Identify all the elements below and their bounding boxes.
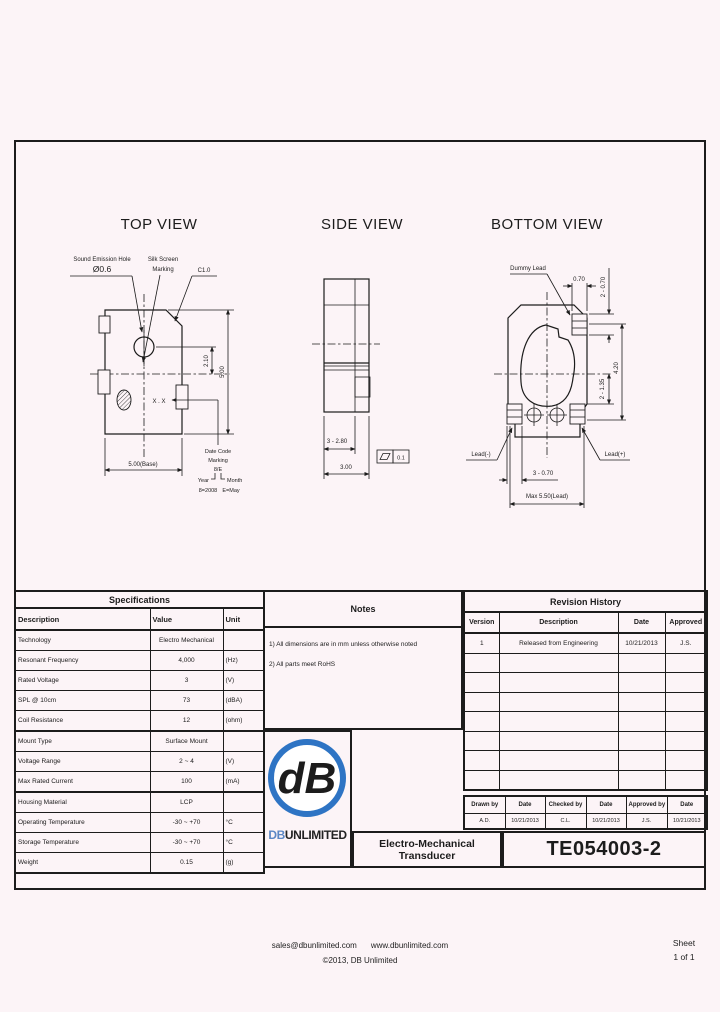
- drawn-by-label: Drawn by: [464, 796, 505, 814]
- specifications-table: Specifications Description Value Unit Te…: [14, 590, 265, 874]
- rev-date: 10/21/2013: [618, 633, 665, 653]
- page-footer: sales@dbunlimited.comwww.dbunlimited.com…: [0, 938, 720, 968]
- sheet-label: Sheet: [658, 936, 710, 950]
- drawn-date-value: 10/21/2013: [505, 814, 545, 830]
- spec-unit: (dBA): [223, 691, 264, 711]
- sound-hole-label: Sound Emission Hole: [73, 257, 131, 263]
- revision-row: 1 Released from Engineering 10/21/2013 J…: [464, 633, 707, 653]
- bottom-view: BOTTOM VIEW: [466, 216, 630, 508]
- product-title: Electro-Mechanical Transducer: [352, 831, 502, 868]
- dim-height: 5.00: [220, 366, 226, 378]
- flatness-icon: [380, 454, 390, 460]
- spec-unit: °C: [223, 813, 264, 833]
- spec-unit: (Hz): [223, 651, 264, 671]
- spec-row: Max Rated Current100(mA): [15, 772, 264, 793]
- spec-row: Storage Temperature-30 ~ +70°C: [15, 833, 264, 853]
- dim-span: 4.20: [614, 362, 620, 374]
- sheet-info: Sheet 1 of 1: [658, 936, 710, 964]
- top-pad: [98, 370, 110, 394]
- rev-col-description: Description: [499, 612, 618, 633]
- logo-db-text: DB: [268, 828, 285, 842]
- datecode-month-example: E=May: [222, 488, 240, 494]
- revision-row-empty: [464, 770, 707, 790]
- spec-unit: (g): [223, 853, 264, 874]
- silkscreen-label-2: Marking: [152, 267, 173, 273]
- spec-row: Weight0.15(g): [15, 853, 264, 874]
- spec-value: -30 ~ +70: [150, 813, 223, 833]
- spec-desc: Housing Material: [15, 792, 150, 813]
- datecode-year-example: 8=2008: [199, 488, 218, 494]
- spec-row: Operating Temperature-30 ~ +70°C: [15, 813, 264, 833]
- approved-by-value: J.S.: [626, 814, 667, 830]
- bottom-view-title: BOTTOM VIEW: [491, 216, 603, 233]
- spec-value: 12: [150, 711, 223, 732]
- logo-cell: dB DBUNLIMITED: [263, 730, 352, 868]
- logo-wordmark: DBUNLIMITED: [265, 828, 350, 842]
- side-view: SIDE VIEW 3 - 2.80 3.00: [312, 216, 409, 479]
- spec-desc: Storage Temperature: [15, 833, 150, 853]
- spec-desc: Rated Voltage: [15, 671, 150, 691]
- spec-col-value: Value: [150, 608, 223, 630]
- rev-col-approved: Approved: [665, 612, 707, 633]
- dummy-lead-leader: [547, 274, 570, 315]
- spec-row: Coil Resistance12(ohm): [15, 711, 264, 732]
- spec-desc: SPL @ 10cm: [15, 691, 150, 711]
- spec-row: Resonant Frequency4,000(Hz): [15, 651, 264, 671]
- approved-date-value: 10/21/2013: [667, 814, 707, 830]
- spec-col-description: Description: [15, 608, 150, 630]
- revision-row-empty: [464, 712, 707, 732]
- rev-col-date: Date: [618, 612, 665, 633]
- spec-row: Voltage Range2 ~ 4(V): [15, 752, 264, 772]
- footer-website: www.dbunlimited.com: [371, 941, 448, 950]
- logo-unlimited-text: UNLIMITED: [285, 828, 347, 842]
- spec-value: Surface Mount: [150, 731, 223, 752]
- spec-unit: (V): [223, 671, 264, 691]
- revision-row-empty: [464, 731, 707, 751]
- top-view: TOP VIEW Sound Emission Hole Ø0.6 Silk S…: [70, 216, 242, 494]
- flatness-callout: 0.1: [377, 450, 409, 463]
- spec-unit: [223, 630, 264, 651]
- spec-value: 100: [150, 772, 223, 793]
- revision-row-empty: [464, 692, 707, 712]
- datecode-year-label: Year: [198, 478, 209, 484]
- footer-copyright: ©2013, DB Unlimited: [0, 953, 720, 968]
- date-code-marking-text: X . X: [152, 399, 165, 405]
- top-package-outline: [105, 310, 182, 434]
- revision-row-empty: [464, 751, 707, 771]
- date-label: Date: [586, 796, 626, 814]
- dim-pads-right: 2 - 0.70: [601, 276, 607, 297]
- silkscreen-leader: [143, 275, 160, 362]
- part-number: TE054003-2: [502, 831, 706, 868]
- datasheet-page: TOP VIEW Sound Emission Hole Ø0.6 Silk S…: [0, 0, 720, 1012]
- rev-description: Released from Engineering: [499, 633, 618, 653]
- dummy-lead-label: Dummy Lead: [510, 266, 546, 272]
- rev-version: 1: [464, 633, 499, 653]
- spec-unit: °C: [223, 833, 264, 853]
- spec-desc: Operating Temperature: [15, 813, 150, 833]
- sound-hole-diameter: Ø0.6: [93, 264, 112, 274]
- logo-monogram: dB: [278, 754, 337, 803]
- revision-row-empty: [464, 673, 707, 693]
- spec-col-unit: Unit: [223, 608, 264, 630]
- notes-title: Notes: [265, 592, 461, 628]
- signoff-block: Drawn by Date Checked by Date Approved b…: [463, 795, 708, 830]
- spec-row: Housing MaterialLCP: [15, 792, 264, 813]
- top-view-title: TOP VIEW: [121, 216, 198, 233]
- side-view-title: SIDE VIEW: [321, 216, 403, 233]
- lead-neg-pad: [507, 404, 522, 424]
- spec-unit: (ohm): [223, 711, 264, 732]
- silkscreen-label: Silk Screen: [148, 257, 178, 263]
- spec-row: TechnologyElectro Mechanical: [15, 630, 264, 651]
- spec-unit: (V): [223, 752, 264, 772]
- dim-hole-offset: 2.10: [204, 355, 210, 367]
- top-pad: [176, 385, 188, 409]
- revision-history-title: Revision History: [464, 591, 707, 612]
- side-package-outline: [324, 279, 369, 412]
- sheet-number: 1 of 1: [658, 950, 710, 964]
- spec-row: Rated Voltage3(V): [15, 671, 264, 691]
- drawing-views: TOP VIEW Sound Emission Hole Ø0.6 Silk S…: [16, 142, 704, 592]
- spec-unit: [223, 792, 264, 813]
- checked-date-value: 10/21/2013: [586, 814, 626, 830]
- spec-desc: Mount Type: [15, 731, 150, 752]
- dim-pad-width: 0.70: [573, 277, 585, 283]
- spec-value: 2 ~ 4: [150, 752, 223, 772]
- spec-desc: Voltage Range: [15, 752, 150, 772]
- spec-row: Mount TypeSurface Mount: [15, 731, 264, 752]
- dim-lead-max: Max 5.50(Lead): [526, 494, 568, 500]
- spec-unit: [223, 731, 264, 752]
- spec-desc: Resonant Frequency: [15, 651, 150, 671]
- note-item: 2) All parts meet RoHS: [269, 655, 457, 675]
- lead-pos-label: Lead(+): [605, 452, 626, 458]
- spec-desc: Max Rated Current: [15, 772, 150, 793]
- spec-value: 3: [150, 671, 223, 691]
- date-label: Date: [667, 796, 707, 814]
- silkscreen-mark: [117, 390, 131, 410]
- revision-row-empty: [464, 653, 707, 673]
- date-label: Date: [505, 796, 545, 814]
- dummy-lead-pad: [572, 314, 587, 335]
- bottom-cavity: [521, 325, 575, 406]
- notes-box: Notes 1) All dimensions are in mm unless…: [263, 590, 463, 730]
- datecode-note: 8/E: [214, 467, 223, 473]
- spec-value: 73: [150, 691, 223, 711]
- spec-row: SPL @ 10cm73(dBA): [15, 691, 264, 711]
- lead-neg-label: Lead(-): [471, 452, 490, 458]
- dim-base: 5.00(Base): [128, 462, 157, 468]
- drawn-by-value: A.D.: [464, 814, 505, 830]
- datecode-note: Date Code: [205, 449, 231, 455]
- specifications-title: Specifications: [15, 591, 264, 608]
- flatness-value: 0.1: [397, 456, 405, 462]
- datecode-note: Marking: [208, 458, 228, 464]
- rev-col-version: Version: [464, 612, 499, 633]
- spec-value: Electro Mechanical: [150, 630, 223, 651]
- side-terminal: [355, 377, 370, 397]
- spec-desc: Coil Resistance: [15, 711, 150, 732]
- datecode-month-label: Month: [227, 478, 242, 484]
- note-item: 1) All dimensions are in mm unless other…: [269, 635, 457, 655]
- spec-desc: Weight: [15, 853, 150, 874]
- revision-history-table: Revision History Version Description Dat…: [463, 590, 708, 791]
- lead-pos-pad: [570, 404, 585, 424]
- chamfer-label: C1.0: [198, 268, 211, 274]
- spec-desc: Technology: [15, 630, 150, 651]
- checked-by-label: Checked by: [545, 796, 586, 814]
- rev-approved: J.S.: [665, 633, 707, 653]
- checked-by-value: C.L.: [545, 814, 586, 830]
- spec-unit: (mA): [223, 772, 264, 793]
- chamfer-leader: [175, 276, 192, 321]
- spec-value: -30 ~ +70: [150, 833, 223, 853]
- dim-side-pad: 3 - 2.80: [327, 439, 348, 445]
- top-pad: [99, 316, 110, 333]
- db-unlimited-logo-icon: dB: [265, 732, 350, 824]
- dim-inner: 2 - 1.35: [600, 378, 606, 399]
- spec-value: LCP: [150, 792, 223, 813]
- approved-by-label: Approved by: [626, 796, 667, 814]
- spec-value: 4,000: [150, 651, 223, 671]
- dim-side-width: 3.00: [340, 465, 352, 471]
- sound-hole-leader: [132, 276, 142, 332]
- dim-pads-bottom: 3 - 0.70: [533, 471, 554, 477]
- spec-value: 0.15: [150, 853, 223, 874]
- footer-email: sales@dbunlimited.com: [272, 941, 357, 950]
